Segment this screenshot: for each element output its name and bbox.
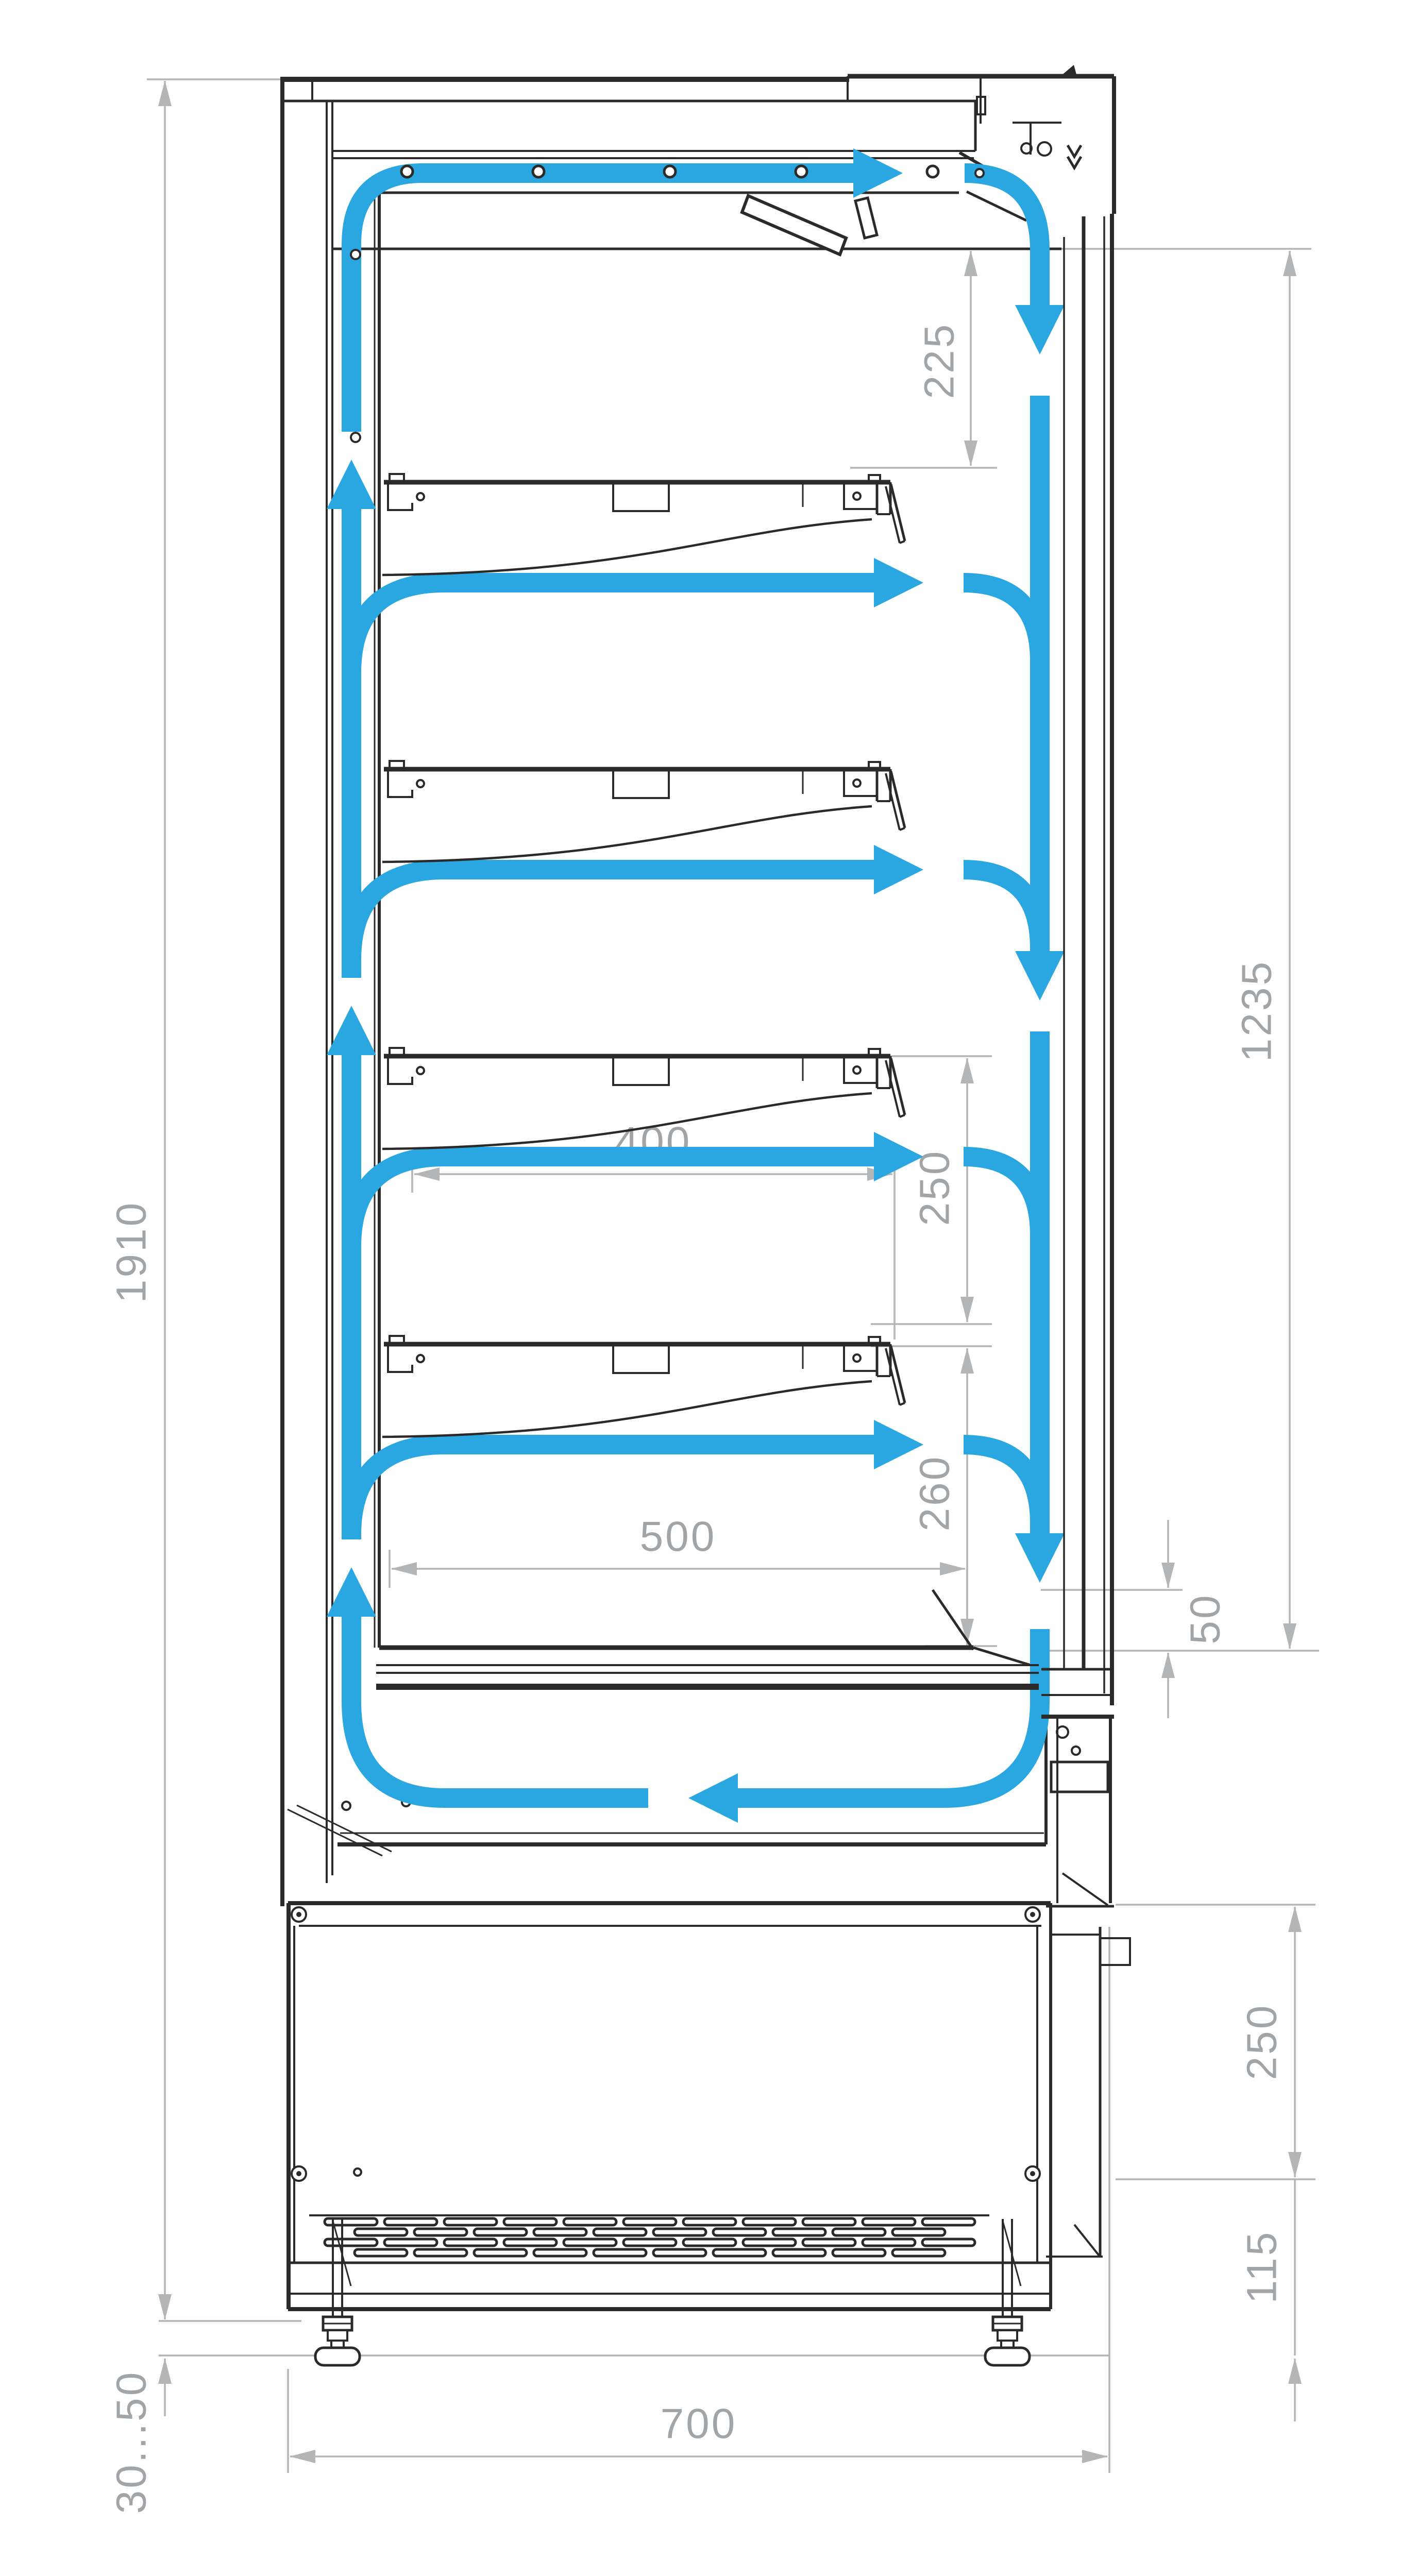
dim-feet-range: 30...50 (108, 2321, 301, 2514)
lamp-strip (855, 198, 877, 238)
airflow-arrows (327, 148, 1065, 1823)
grille-slot (803, 2239, 855, 2246)
grille-slot (355, 2229, 407, 2235)
dim-opening-height-label: 1235 (1234, 960, 1280, 1062)
grille-slot (594, 2229, 646, 2235)
glass-door (1064, 214, 1112, 1705)
grille-slot (892, 2229, 945, 2235)
grille-slot (833, 2229, 885, 2235)
screw (1025, 2166, 1040, 2181)
shelf-light-cable (382, 806, 872, 862)
screw (1025, 1907, 1040, 1922)
airflow-return-rear (351, 1617, 648, 1798)
duct-perforations (351, 166, 984, 442)
grille-slot (713, 2249, 766, 2256)
adjustable-foot-front (985, 2219, 1030, 2365)
door-pivot-block (1051, 1762, 1108, 1792)
airflow-under-shelf-2 (351, 870, 874, 960)
dim-well-depth: 500 (390, 1513, 967, 1646)
shelf-light-cable (382, 519, 872, 575)
grille-slot (384, 2239, 437, 2246)
grille-slot (474, 2249, 527, 2256)
airflow-arrowhead-left (688, 1773, 738, 1823)
shelf-2 (384, 761, 905, 830)
dim-last-shelf-gap: 260 (871, 1346, 997, 1646)
dim-total-height-label: 1910 (108, 1201, 155, 1303)
airflow-arrowhead-down (1015, 305, 1065, 354)
grille-slot (504, 2218, 556, 2225)
grille-slot (863, 2239, 915, 2246)
grille-slot (504, 2239, 556, 2246)
dim-feet-range-label: 30...50 (108, 2370, 155, 2514)
airflow-shelf-branches (351, 558, 1040, 1535)
airflow-under-shelf-4 (351, 1445, 874, 1535)
grille-slot (653, 2249, 706, 2256)
airflow-arrowhead-up (327, 460, 376, 509)
dim-base-height: 250 (1116, 1905, 1315, 2179)
grille-slot (922, 2218, 975, 2225)
dim-grille-height: 115 (1239, 2179, 1295, 2421)
grille-slot (444, 2218, 497, 2225)
grille-slot (773, 2249, 825, 2256)
hinge-pin (1057, 1726, 1068, 1738)
grille-slot (773, 2229, 825, 2235)
grille-slot (892, 2249, 945, 2256)
grille-slot (922, 2239, 975, 2246)
airflow-arrowhead-up (327, 1567, 376, 1617)
grille-slot (444, 2239, 497, 2246)
grille-slot (863, 2218, 915, 2225)
dim-front-gap: 50 (1041, 1520, 1229, 1718)
airflow-under-shelf-1 (351, 583, 874, 673)
grille-slot (743, 2239, 796, 2246)
airflow-arrowhead-up (327, 1006, 376, 1055)
grille-slot (743, 2218, 796, 2225)
airflow-arrowhead-right (874, 558, 923, 607)
airflow-elbow-3 (964, 1157, 1040, 1235)
airflow-elbow-2 (964, 870, 1040, 948)
dim-front-gap-label: 50 (1182, 1593, 1229, 1644)
shelf-1 (384, 474, 905, 543)
cabinet-structure (280, 65, 1130, 2309)
grille-slot (414, 2249, 467, 2256)
grille-slot (623, 2218, 676, 2225)
grille-slot (833, 2249, 885, 2256)
dim-base-height-label: 250 (1239, 2004, 1286, 2080)
screw (292, 1907, 306, 1922)
grille-slot (683, 2218, 736, 2225)
cabinet-section-drawing: 1910 30...50 225 1235 250 (0, 0, 1417, 2576)
dim-total-depth: 700 (288, 1927, 1109, 2473)
ventilation-grille (325, 2218, 975, 2256)
dim-last-shelf-gap-label: 260 (912, 1455, 958, 1532)
airflow-elbow-1 (964, 583, 1040, 661)
gasket-clip (1068, 145, 1081, 157)
dim-shelf-spacing: 250 (871, 1056, 992, 1324)
airflow-arrowhead-right (853, 148, 903, 198)
grille-slot (653, 2229, 706, 2235)
grille-slot (803, 2218, 855, 2225)
airflow-elbow-4 (964, 1445, 1040, 1523)
grille-slot (594, 2249, 646, 2256)
dim-canopy-gap: 225 (799, 249, 1311, 468)
overlay-structure (315, 166, 1114, 2365)
grille-slot (355, 2249, 407, 2256)
shelf-4 (384, 1336, 905, 1405)
adjustable-foot-rear (315, 2219, 360, 2365)
grille-slot (384, 2218, 437, 2225)
grille-slot (564, 2218, 616, 2225)
airflow-arrowhead-down (1015, 951, 1065, 1001)
dim-well-depth-label: 500 (640, 1513, 717, 1560)
airflow-arrowhead-down (1015, 1533, 1065, 1583)
airflow-under-shelf-3 (351, 1157, 874, 1247)
shelf-3 (384, 1048, 905, 1117)
dim-canopy-gap-label: 225 (916, 323, 963, 399)
dim-grille-height-label: 115 (1239, 2230, 1286, 2304)
grille-slot (534, 2249, 586, 2256)
grille-slot (414, 2229, 467, 2235)
air-deflector-vane (742, 196, 846, 255)
dim-shelf-spacing-label: 250 (912, 1149, 958, 1226)
dim-total-height: 1910 (108, 79, 281, 2319)
airflow-curtain-top (965, 173, 1040, 305)
airflow-arrowhead-right (874, 845, 923, 894)
grille-slot (683, 2239, 736, 2246)
grille-slot (713, 2229, 766, 2235)
dim-total-depth-label: 700 (661, 2400, 737, 2447)
grille-slot (623, 2239, 676, 2246)
shelf-light-cable (382, 1381, 872, 1437)
bottom-well (288, 1590, 1046, 1856)
drawing-page: 1910 30...50 225 1235 250 (0, 0, 1417, 2576)
grille-slot (534, 2229, 586, 2235)
condensate-tray (1100, 1938, 1130, 1965)
door-top-frame (981, 76, 1114, 214)
grille-slot (474, 2229, 527, 2235)
grille-slot (564, 2239, 616, 2246)
shelf-cables (382, 519, 872, 1437)
roof-and-canopy (280, 65, 1114, 249)
screw (292, 2166, 306, 2181)
temperature-probe-marker (1060, 65, 1077, 76)
